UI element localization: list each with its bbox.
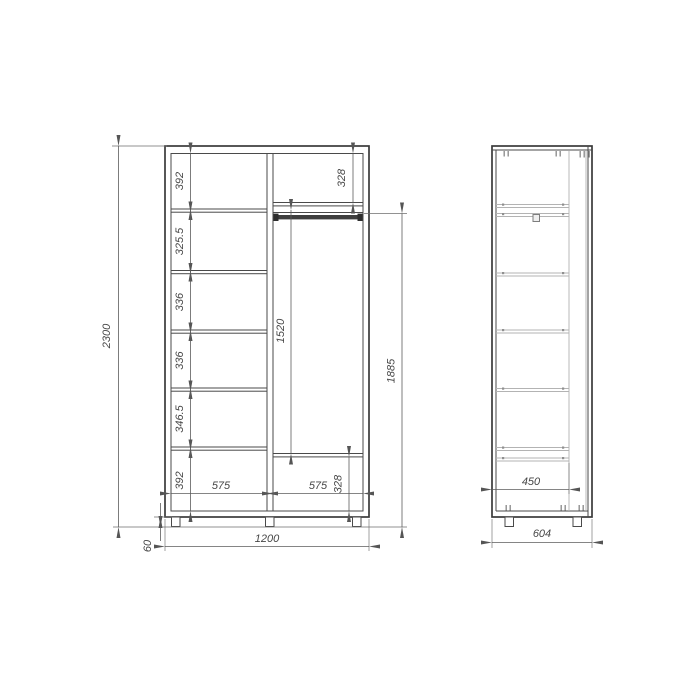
front-view: 2300 60 1200 392 325.5 336 [101, 146, 407, 552]
side-legs [505, 517, 582, 527]
side-shelf-lines [496, 204, 569, 462]
dim-label-section-4: 336 [174, 350, 186, 369]
drawing-canvas: 2300 60 1200 392 325.5 336 [0, 0, 700, 700]
shelf-fitting-dots [502, 204, 564, 460]
hanging-rod [273, 213, 363, 222]
dim-label-carcass-depth: 450 [522, 476, 541, 488]
shelf [171, 447, 267, 450]
side-door-panel [586, 146, 588, 517]
rod-bracket [358, 214, 363, 221]
side-view: 450 604 [492, 146, 592, 548]
dim-left-section-6: 392 [174, 451, 191, 512]
dim-label-overall-depth: 604 [533, 528, 551, 540]
dim-left-section-4: 336 [174, 334, 191, 389]
leg [353, 517, 362, 527]
dim-hanging-space: 1520 [275, 210, 291, 454]
dim-label-section-2: 325.5 [174, 227, 186, 255]
dim-label-section-1: 392 [174, 172, 186, 190]
rod-bracket [274, 214, 279, 221]
dim-label-right-width: 575 [309, 480, 328, 492]
center-divider [267, 154, 273, 512]
dim-label-interior-height: 1885 [386, 358, 398, 383]
wardrobe-technical-drawing: 2300 60 1200 392 325.5 336 [0, 0, 700, 700]
dim-interior-height: 1885 [364, 214, 407, 528]
shelf [273, 203, 363, 206]
leg [573, 517, 582, 527]
dim-leg-height: 60 [142, 503, 172, 552]
leg [266, 517, 275, 527]
dim-overall-height: 2300 [101, 146, 167, 527]
dim-label-overall-width: 1200 [255, 533, 280, 545]
dim-label-section-3: 336 [174, 292, 186, 311]
dim-left-section-5: 346.5 [174, 392, 191, 448]
shelf [171, 388, 267, 391]
dim-label-section-6: 392 [174, 471, 186, 489]
dim-carcass-depth: 450 [492, 463, 569, 494]
shelf [171, 330, 267, 333]
dim-right-bottom-section: 328 [333, 457, 350, 511]
shelf [171, 209, 267, 212]
dim-label-overall-height: 2300 [101, 323, 113, 349]
dim-label-right-top: 328 [336, 168, 348, 187]
dim-right-column-width: 575 [273, 480, 363, 494]
leg [172, 517, 181, 527]
dim-left-section-3: 336 [174, 274, 191, 330]
shelf [273, 454, 363, 457]
shelf [171, 271, 267, 274]
side-bottom-fittings [506, 505, 584, 511]
rod-section-mark [533, 215, 540, 222]
dim-label-leg-height: 60 [142, 539, 154, 552]
dim-label-hanging-space: 1520 [275, 318, 287, 343]
dim-left-section-1: 392 [174, 154, 191, 210]
side-top-fittings [504, 151, 590, 158]
dim-left-section-2: 325.5 [174, 213, 191, 271]
dim-label-right-bottom: 328 [333, 474, 345, 493]
dim-label-left-width: 575 [212, 480, 231, 492]
front-legs [172, 517, 362, 527]
leg [505, 517, 514, 527]
dim-right-top-section: 328 [336, 154, 353, 203]
dim-label-section-5: 346.5 [174, 404, 186, 432]
